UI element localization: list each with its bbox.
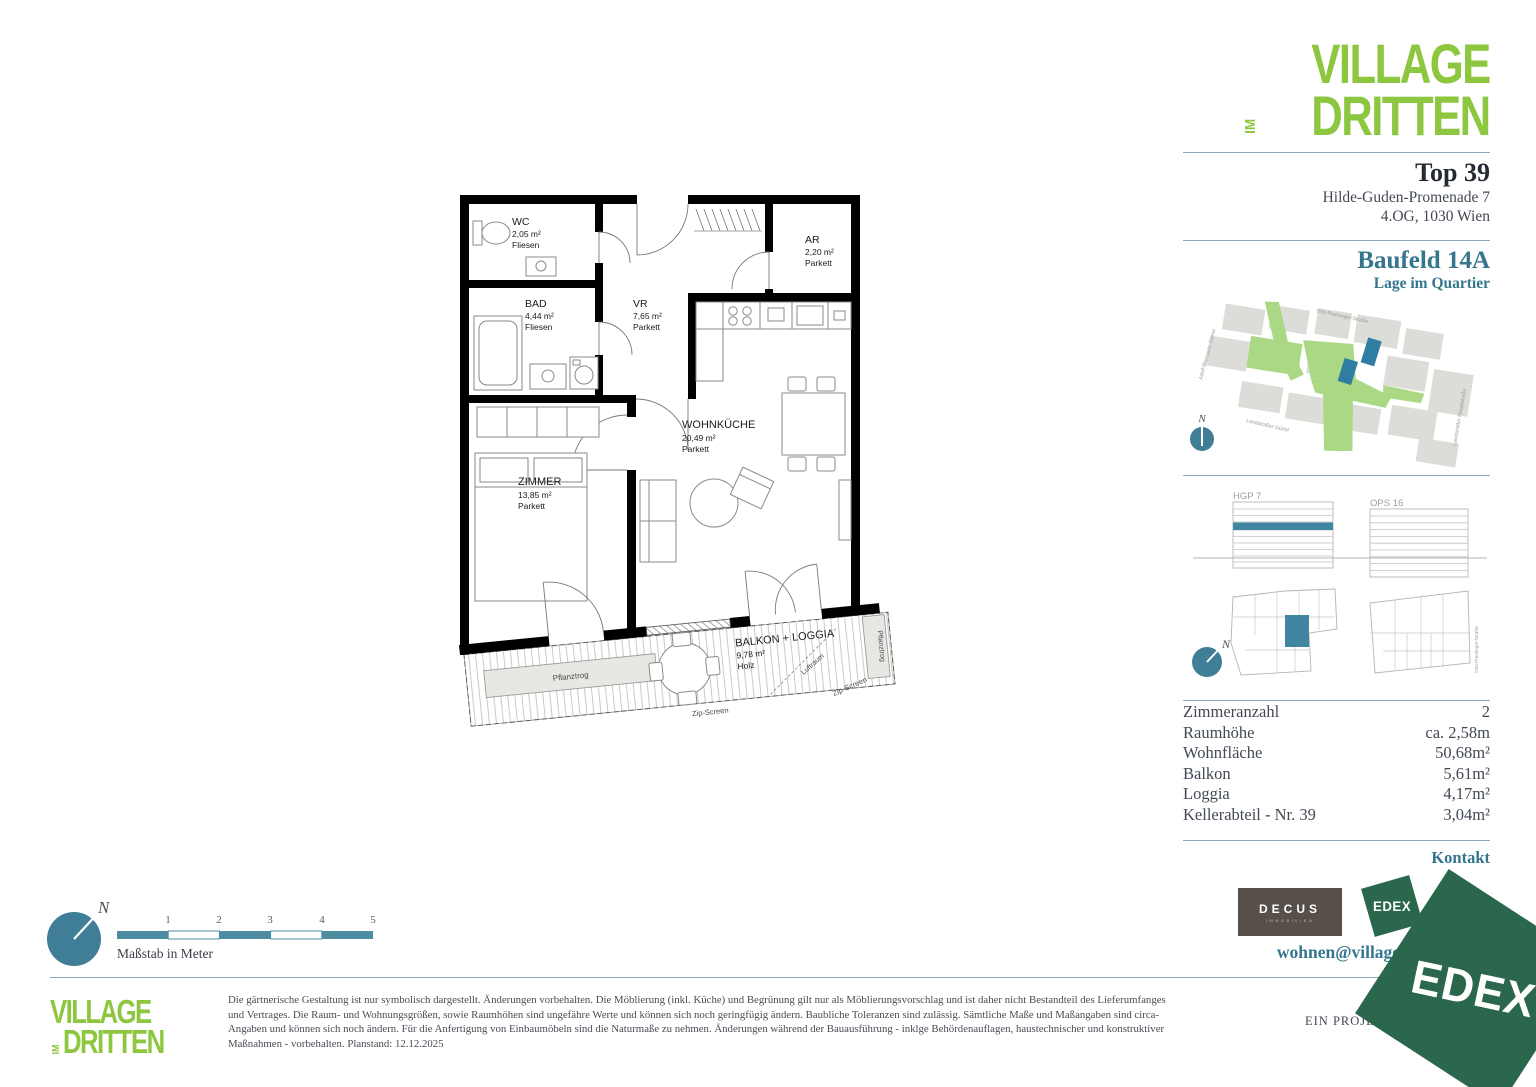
floorplan-drawing: WC 2,05 m² Fliesen BAD 4,44 m² Fliesen V… xyxy=(430,185,910,785)
divider xyxy=(1183,240,1490,241)
disclaimer-text: Die gärtnerische Gestaltung ist nur symb… xyxy=(228,993,1166,1051)
svg-text:2: 2 xyxy=(216,914,222,926)
zip-screen-label-bottom: Zip-Screen xyxy=(692,706,729,719)
unit-details-table: Zimmeranzahl 2 Raumhöhe ca. 2,58m Wohnfl… xyxy=(1183,702,1490,825)
section-label-hgp7: HGP 7 xyxy=(1233,491,1261,502)
decus-logo: DECUS IMMOBILIEN xyxy=(1238,888,1342,936)
quartier-map: Otto-Preminger-Straße Adolf-Blamauer-Gas… xyxy=(1188,296,1490,468)
svg-text:Parkett: Parkett xyxy=(518,501,546,511)
floorplate-ops16 xyxy=(1370,591,1470,673)
scalebar-graphic: N 1 2 3 4 5 xyxy=(40,895,400,970)
svg-text:N: N xyxy=(1197,413,1206,425)
room-name-vr: VR xyxy=(633,298,648,310)
table-row: Loggia 4,17m² xyxy=(1183,784,1490,805)
highlighted-unit xyxy=(1285,615,1309,647)
compass-north-label: N xyxy=(97,898,111,917)
floorplate-hgp7 xyxy=(1231,589,1337,675)
brand-logo-line2: DRITTEN xyxy=(1312,90,1490,142)
svg-text:13,85 m²: 13,85 m² xyxy=(518,490,552,500)
brand-logo: VILLAGE IM DRITTEN xyxy=(1253,38,1490,141)
divider xyxy=(1183,700,1490,701)
address-line1: Hilde-Guden-Promenade 7 xyxy=(1183,188,1490,207)
table-row: Balkon 5,61m² xyxy=(1183,764,1490,785)
quartier-subtitle: Lage im Quartier xyxy=(1183,275,1490,293)
building-sections: HGP 7 OPS 16 Otto-Preminger-Straße N xyxy=(1185,485,1495,690)
room-name-ar: AR xyxy=(805,234,820,246)
svg-text:1: 1 xyxy=(165,914,171,926)
svg-text:4: 4 xyxy=(319,914,325,926)
sections-compass: N xyxy=(1192,637,1231,677)
divider xyxy=(1183,152,1490,153)
divider xyxy=(1183,840,1490,841)
section-street-label: Otto-Preminger-Straße xyxy=(1474,626,1479,673)
address-line2: 4.OG, 1030 Wien xyxy=(1183,207,1490,226)
svg-text:7,65 m²: 7,65 m² xyxy=(633,311,662,321)
room-name-wohnkueche: WOHNKÜCHE xyxy=(682,419,755,431)
scalebar-caption: Maßstab in Meter xyxy=(117,946,213,962)
svg-text:Fliesen: Fliesen xyxy=(525,322,553,332)
brand-logo-line1: VILLAGE xyxy=(1312,38,1490,90)
svg-text:20,49 m²: 20,49 m² xyxy=(682,433,716,443)
floorplan-sheet: WC 2,05 m² Fliesen BAD 4,44 m² Fliesen V… xyxy=(0,0,1536,1087)
map-compass: N xyxy=(1190,413,1214,451)
svg-text:2,05 m²: 2,05 m² xyxy=(512,229,541,239)
kontakt-heading: Kontakt xyxy=(1183,848,1490,868)
svg-text:Fliesen: Fliesen xyxy=(512,240,540,250)
table-row: Zimmeranzahl 2 xyxy=(1183,702,1490,723)
footer-brand-logo: VILLAGE IM DRITTEN xyxy=(50,997,200,1058)
svg-text:5: 5 xyxy=(370,914,376,926)
baufeld-title: Baufeld 14A xyxy=(1183,247,1490,275)
unit-title: Top 39 xyxy=(1183,158,1490,188)
room-name-zimmer: ZIMMER xyxy=(518,476,561,488)
table-row: Raumhöhe ca. 2,58m xyxy=(1183,723,1490,744)
svg-text:2,20 m²: 2,20 m² xyxy=(805,247,834,257)
highlighted-floor xyxy=(1233,523,1333,531)
svg-text:N: N xyxy=(1221,637,1231,651)
svg-text:4,44 m²: 4,44 m² xyxy=(525,311,554,321)
svg-text:Parkett: Parkett xyxy=(805,258,833,268)
svg-text:Landstraßer Gürtel: Landstraßer Gürtel xyxy=(1246,418,1290,434)
section-label-ops16: OPS 16 xyxy=(1370,498,1403,509)
brand-logo-im: IM xyxy=(1244,116,1258,134)
table-row: Wohnfläche 50,68m² xyxy=(1183,743,1490,764)
svg-text:3: 3 xyxy=(267,914,273,926)
scale-bar xyxy=(117,931,373,939)
table-row: Kellerabteil - Nr. 39 3,04m² xyxy=(1183,805,1490,826)
svg-text:Parkett: Parkett xyxy=(682,444,710,454)
svg-text:Holz: Holz xyxy=(737,660,755,672)
room-name-bad: BAD xyxy=(525,298,547,310)
divider xyxy=(1183,475,1490,476)
room-name-wc: WC xyxy=(512,216,530,228)
scale-ticks: 1 2 3 4 5 xyxy=(165,914,376,926)
svg-text:Parkett: Parkett xyxy=(633,322,661,332)
footer-divider xyxy=(50,977,1490,978)
